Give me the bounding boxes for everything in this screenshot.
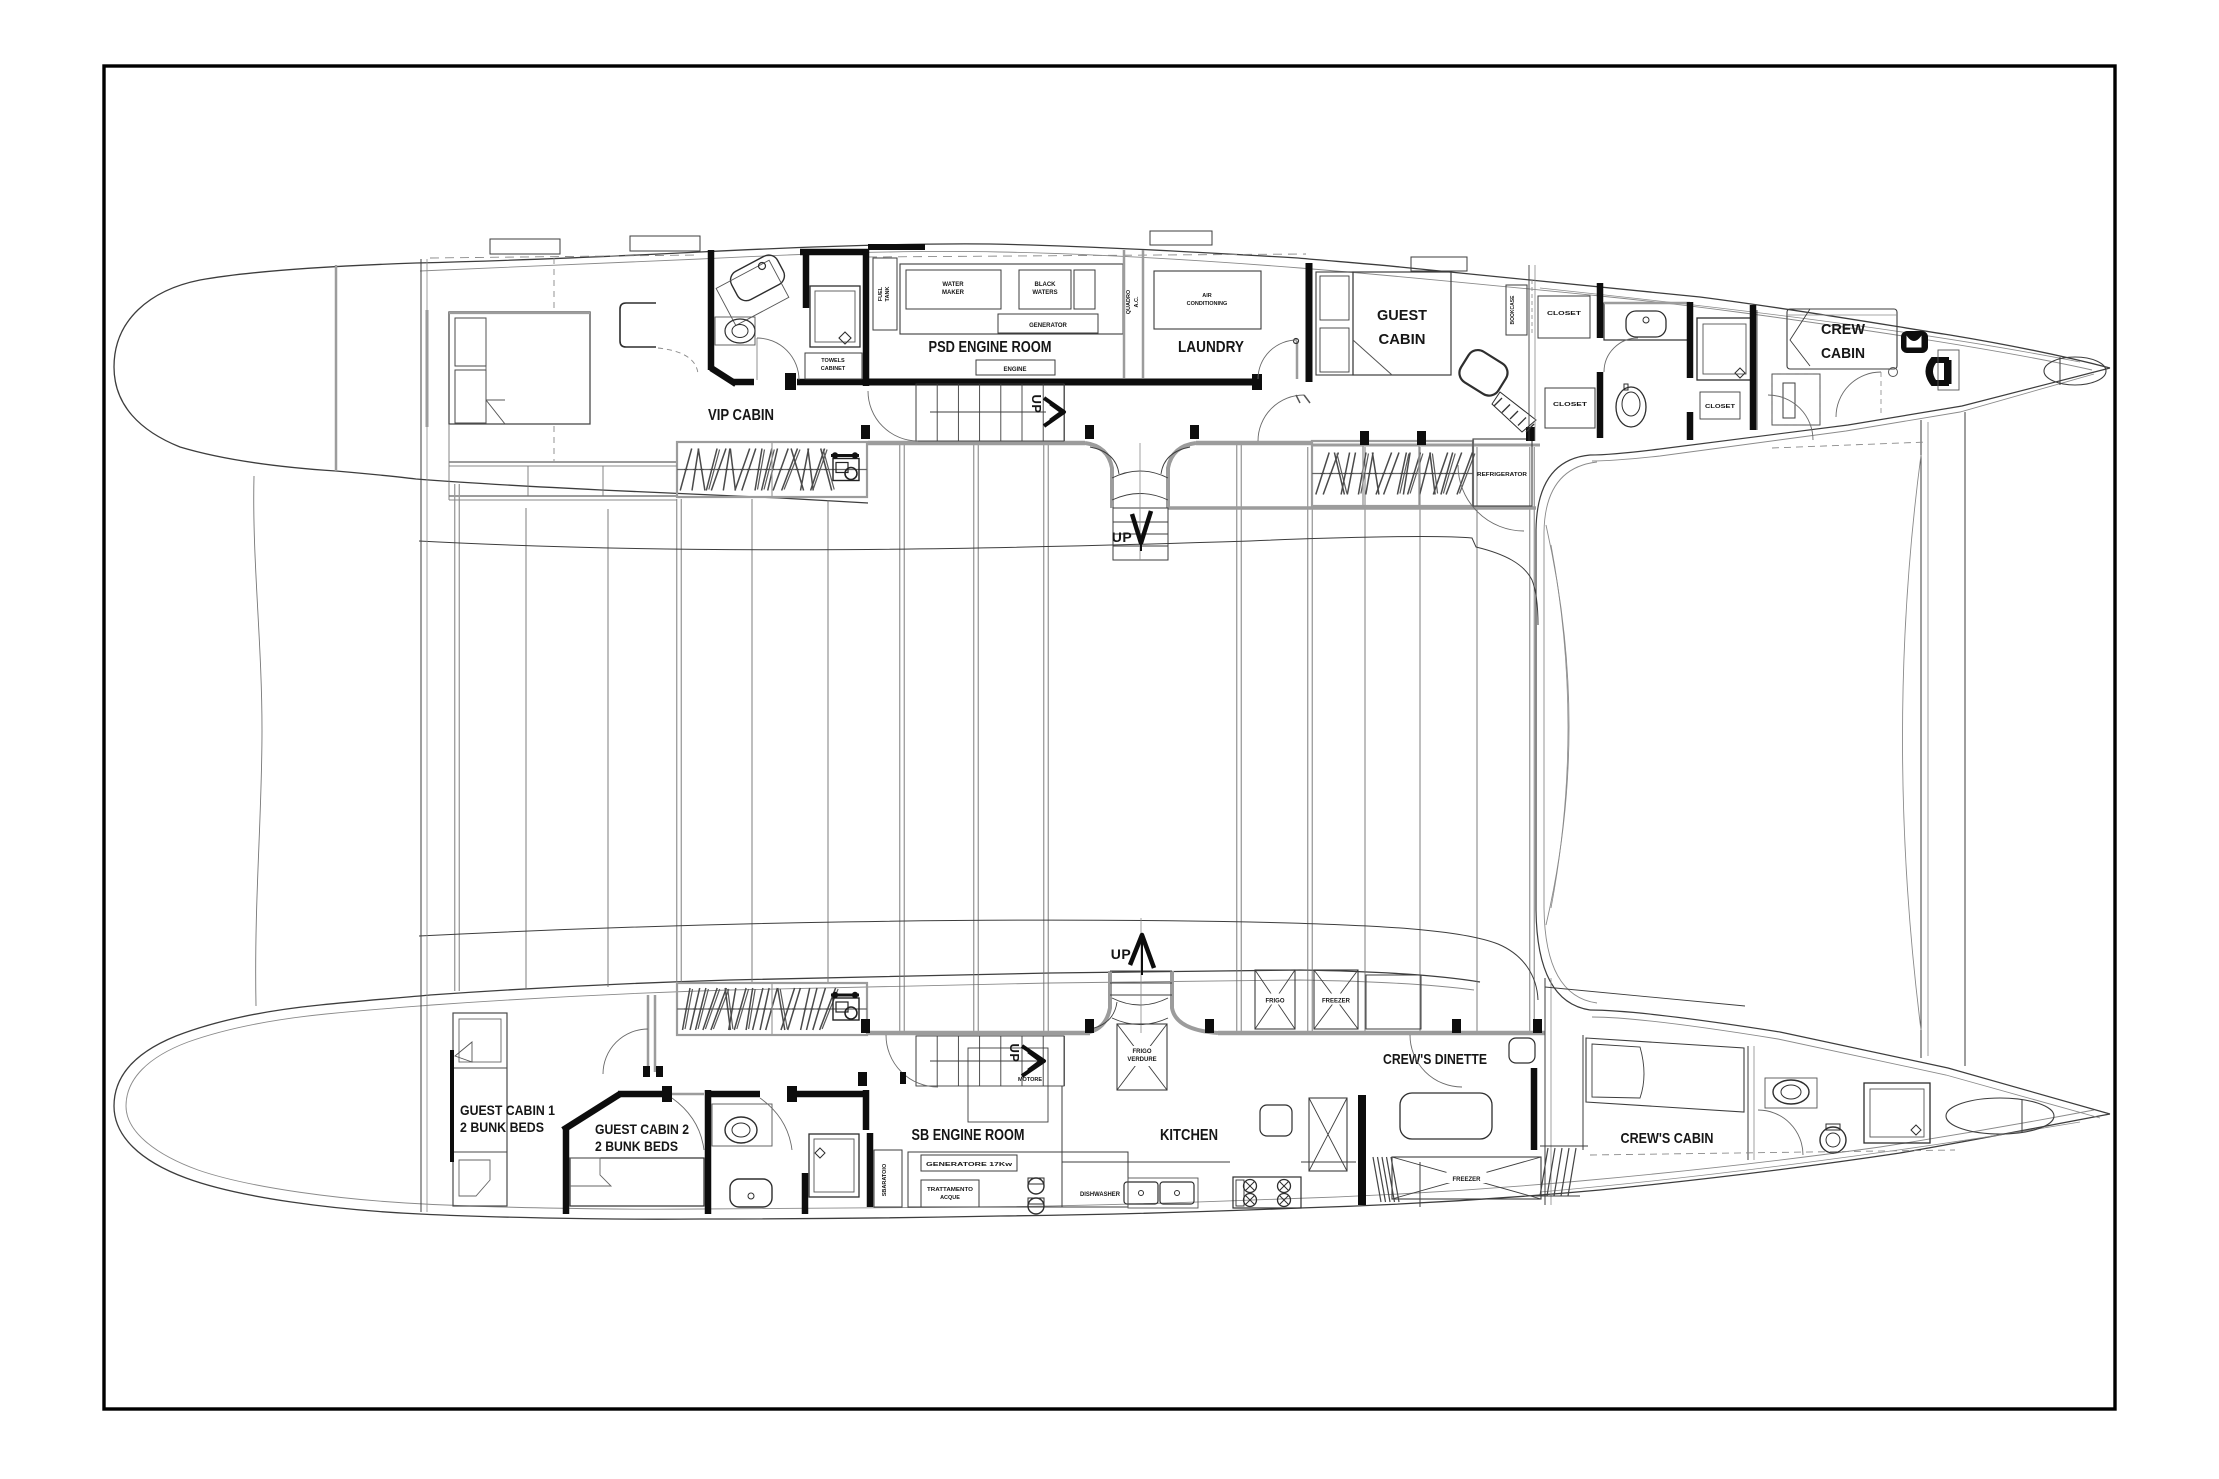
svg-text:TRATTAMENTO: TRATTAMENTO — [927, 1187, 974, 1193]
svg-text:WATERS: WATERS — [1032, 290, 1057, 296]
svg-text:GUEST CABIN 1: GUEST CABIN 1 — [460, 1102, 555, 1118]
svg-text:2 BUNK BEDS: 2 BUNK BEDS — [595, 1138, 678, 1154]
svg-text:FREEZER: FREEZER — [1322, 999, 1351, 1005]
svg-text:CABIN: CABIN — [1379, 331, 1426, 348]
svg-text:MAKER: MAKER — [942, 290, 965, 296]
svg-text:CLOSET: CLOSET — [1553, 402, 1588, 408]
svg-text:FREEZER: FREEZER — [1452, 1177, 1481, 1183]
svg-text:KITCHEN: KITCHEN — [1160, 1127, 1218, 1144]
svg-text:FRIGO: FRIGO — [1133, 1049, 1152, 1055]
svg-text:CREW'S CABIN: CREW'S CABIN — [1621, 1130, 1714, 1147]
svg-text:SB ENGINE ROOM: SB ENGINE ROOM — [912, 1127, 1025, 1144]
svg-text:UP: UP — [1112, 529, 1132, 545]
svg-text:CLOSET: CLOSET — [1705, 404, 1735, 410]
svg-text:WATER: WATER — [942, 282, 964, 288]
svg-text:TANK: TANK — [885, 287, 891, 302]
svg-text:AIR: AIR — [1202, 293, 1212, 299]
svg-text:ACQUE: ACQUE — [940, 1195, 960, 1201]
svg-text:BOOKCASE: BOOKCASE — [1510, 295, 1516, 325]
svg-text:FUEL: FUEL — [878, 286, 884, 301]
svg-text:UP: UP — [1007, 1043, 1022, 1062]
svg-text:CREW'S DINETTE: CREW'S DINETTE — [1383, 1051, 1487, 1068]
svg-text:UP: UP — [1111, 946, 1131, 962]
svg-text:SBARATOIO: SBARATOIO — [882, 1163, 888, 1196]
svg-text:REFRIGERATOR: REFRIGERATOR — [1477, 472, 1527, 478]
svg-text:ENGINE: ENGINE — [1003, 367, 1026, 373]
svg-text:GENERATOR: GENERATOR — [1029, 323, 1067, 329]
svg-text:QUADRO: QUADRO — [1126, 289, 1132, 314]
svg-text:VIP CABIN: VIP CABIN — [708, 407, 774, 424]
svg-text:DISHWASHER: DISHWASHER — [1080, 1192, 1121, 1198]
svg-text:LAUNDRY: LAUNDRY — [1178, 339, 1244, 356]
svg-text:CLOSET: CLOSET — [1547, 311, 1582, 317]
svg-text:CABINET: CABINET — [821, 366, 846, 372]
svg-text:UP: UP — [1029, 394, 1044, 413]
svg-text:CREW: CREW — [1821, 321, 1866, 338]
svg-text:GENERATORE 17Kw: GENERATORE 17Kw — [926, 1162, 1013, 1168]
svg-text:VERDURE: VERDURE — [1127, 1057, 1156, 1063]
svg-text:2 BUNK BEDS: 2 BUNK BEDS — [460, 1119, 544, 1135]
svg-text:CABIN: CABIN — [1821, 345, 1865, 362]
svg-text:PSD ENGINE ROOM: PSD ENGINE ROOM — [929, 339, 1052, 356]
svg-text:TOWELS: TOWELS — [821, 358, 845, 364]
svg-text:BLACK: BLACK — [1035, 282, 1057, 288]
svg-text:GUEST: GUEST — [1377, 307, 1427, 324]
svg-text:CONDITIONING: CONDITIONING — [1187, 301, 1228, 307]
svg-text:GUEST CABIN 2: GUEST CABIN 2 — [595, 1121, 689, 1137]
svg-text:MOTORE: MOTORE — [1018, 1077, 1042, 1083]
svg-text:FRIGO: FRIGO — [1266, 999, 1285, 1005]
svg-text:A.C.: A.C. — [1134, 296, 1140, 307]
